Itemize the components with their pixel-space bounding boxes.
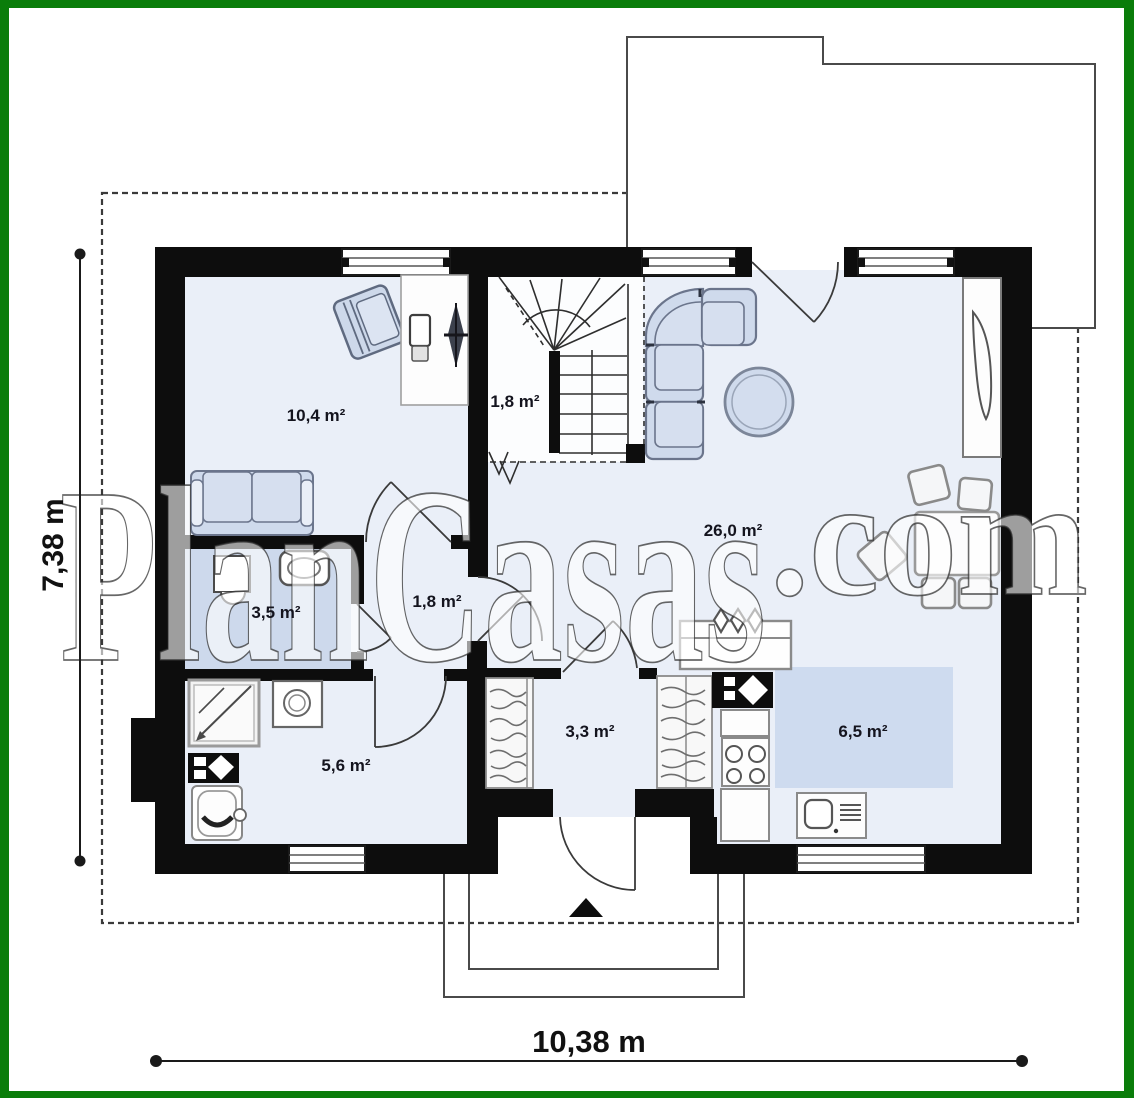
svg-text:5,6 m²: 5,6 m²: [321, 756, 370, 775]
svg-text:10,38 m: 10,38 m: [532, 1024, 646, 1059]
svg-text:3,3 m²: 3,3 m²: [565, 722, 614, 741]
svg-text:10,4 m²: 10,4 m²: [287, 406, 346, 425]
svg-text:PlanCasas: PlanCasas: [60, 435, 766, 715]
svg-text:26,0 m²: 26,0 m²: [704, 521, 763, 540]
svg-text:1,8 m²: 1,8 m²: [412, 592, 461, 611]
svg-text:3,5 m²: 3,5 m²: [251, 603, 300, 622]
svg-text:1,8 m²: 1,8 m²: [490, 392, 539, 411]
svg-text:.com: .com: [770, 445, 1088, 631]
svg-text:7,38 m: 7,38 m: [37, 498, 70, 591]
svg-text:6,5 m²: 6,5 m²: [838, 722, 887, 741]
